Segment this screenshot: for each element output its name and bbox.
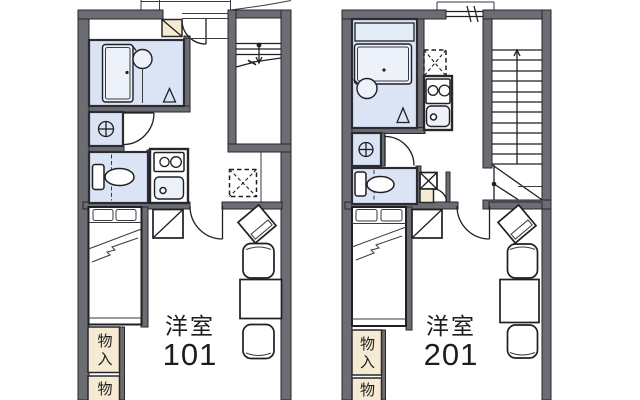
toilet-icon [367, 177, 394, 193]
staircase-201 [492, 50, 542, 200]
tv-stand-101 [238, 205, 276, 243]
bathtub-icon [103, 45, 134, 103]
kitchen-101 [150, 149, 188, 203]
floorplan-canvas: 洋室 101 洋室 201 物入 物 物入 物 [0, 0, 640, 400]
washing-machine-101 [89, 112, 154, 146]
room-door-101 [190, 206, 223, 239]
toilet-201 [352, 168, 417, 204]
bed-201 [352, 207, 406, 326]
bed-icon [352, 207, 406, 326]
entrance-201 [420, 173, 447, 203]
door-swing-icon [124, 113, 155, 145]
dining-table-icon [500, 280, 539, 323]
room-number-101: 101 [146, 339, 234, 370]
window-tick-icon [474, 6, 478, 22]
exterior-lines-101 [141, 0, 291, 10]
storage-label-101-top: 物入 [88, 330, 120, 372]
bed-101 [89, 207, 142, 325]
entrance-step-icon [420, 189, 434, 203]
tv-stand-201 [498, 205, 536, 243]
dining-table-icon [240, 280, 282, 319]
room-name-201: 洋室 [407, 315, 495, 338]
washbasin-icon [357, 79, 377, 99]
room-door-201 [457, 206, 490, 239]
door-swing-icon [457, 206, 490, 239]
refrigerator-space-101 [230, 152, 262, 202]
bathroom-201 [352, 19, 417, 128]
toilet-101 [89, 152, 148, 203]
kitchen-sink-icon [155, 177, 184, 199]
door-swing-icon [385, 137, 414, 166]
closet-101 [153, 210, 183, 239]
storage-label-201-top: 物入 [351, 333, 382, 375]
bathtub-icon [355, 44, 412, 84]
window-tick-icon [467, 6, 471, 22]
kitchen-201 [424, 50, 452, 130]
bathroom-101 [89, 40, 184, 106]
dining-set-201 [500, 244, 539, 358]
door-swing-icon [434, 189, 447, 202]
storage-label-101-bottom: 物 [88, 380, 120, 400]
room-number-201: 201 [407, 339, 495, 370]
storage-label-201-bottom: 物 [351, 382, 382, 400]
closet-201 [412, 210, 442, 239]
room-label-201: 洋室 201 [407, 315, 495, 370]
bed-icon [89, 207, 142, 325]
room-label-101: 洋室 101 [146, 315, 234, 370]
room-name-101: 洋室 [146, 315, 234, 338]
door-swing-icon [190, 206, 223, 239]
refrigerator-space-icon [424, 50, 446, 76]
washbasin-icon [133, 50, 152, 69]
bath-window-icon [355, 23, 414, 41]
staircase-101 [236, 43, 281, 67]
toilet-icon [105, 169, 134, 186]
dining-set-101 [240, 244, 282, 359]
